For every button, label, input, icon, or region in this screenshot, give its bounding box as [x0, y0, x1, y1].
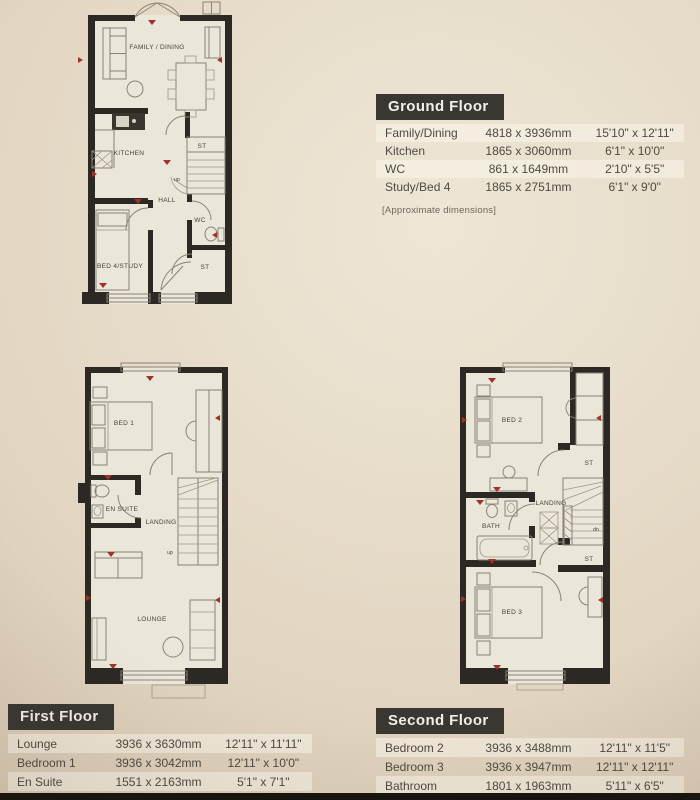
- imperial-dimensions: 15'10" x 12'11": [585, 126, 684, 140]
- imperial-dimensions: 6'1" x 9'0": [585, 180, 684, 194]
- metric-dimensions: 1801 x 1963mm: [471, 779, 585, 793]
- room-label-st-upper: ST: [198, 143, 207, 150]
- room-label-bed2: BED 2: [502, 417, 522, 424]
- table-row: Bedroom 2 3936 x 3488mm 12'11" x 11'5": [376, 738, 684, 757]
- metric-dimensions: 1551 x 2163mm: [102, 775, 214, 789]
- room-label-bed1: BED 1: [114, 420, 134, 427]
- approximate-dimensions-note: [Approximate dimensions]: [376, 205, 684, 216]
- page-bottom-bar: [0, 793, 700, 800]
- table-row: Study/Bed 4 1865 x 2751mm 6'1" x 9'0": [376, 178, 684, 196]
- table-row: En Suite 1551 x 2163mm 5'1" x 7'1": [8, 772, 312, 791]
- room-name: Study/Bed 4: [376, 180, 471, 194]
- second-floor-title: Second Floor: [376, 708, 504, 734]
- room-name: Lounge: [8, 737, 102, 751]
- imperial-dimensions: 12'11" x 11'11": [215, 737, 312, 751]
- second-floor-plan: BED 2 ST BATH LANDING up ST BED 3: [458, 360, 612, 694]
- flue-box: [203, 2, 220, 14]
- metric-dimensions: 1865 x 3060mm: [471, 144, 585, 158]
- room-label-en-suite: EN SUITE: [106, 506, 139, 513]
- ground-floor-table: Ground Floor Family/Dining 4818 x 3936mm…: [376, 94, 684, 216]
- imperial-dimensions: 5'11" x 6'5": [585, 779, 684, 793]
- room-label-bed4-study: BED 4/STUDY: [97, 263, 143, 270]
- room-label-bath: BATH: [482, 523, 500, 530]
- room-label-hall: HALL: [158, 197, 176, 204]
- table-row: WC 861 x 1649mm 2'10" x 5'5": [376, 160, 684, 178]
- table-row: Lounge 3936 x 3630mm 12'11" x 11'11": [8, 734, 312, 753]
- metric-dimensions: 861 x 1649mm: [471, 162, 585, 176]
- stairs-up-label: up: [593, 526, 599, 532]
- room-name: Bedroom 2: [376, 741, 471, 755]
- metric-dimensions: 3936 x 3488mm: [471, 741, 585, 755]
- room-name: WC: [376, 162, 471, 176]
- metric-dimensions: 3936 x 3947mm: [471, 760, 585, 774]
- room-label-kitchen: KITCHEN: [114, 150, 145, 157]
- metric-dimensions: 3936 x 3630mm: [102, 737, 214, 751]
- ground-floor-title: Ground Floor: [376, 94, 504, 120]
- room-label-family-dining: FAMILY / DINING: [129, 44, 184, 51]
- metric-dimensions: 1865 x 2751mm: [471, 180, 585, 194]
- first-floor-table: First Floor Lounge 3936 x 3630mm 12'11" …: [8, 704, 312, 791]
- table-row: Bedroom 3 3936 x 3947mm 12'11" x 12'11": [376, 757, 684, 776]
- room-label-st-lower: ST: [585, 556, 594, 563]
- room-name: Family/Dining: [376, 126, 471, 140]
- imperial-dimensions: 6'1" x 10'0": [585, 144, 684, 158]
- room-name: Bedroom 3: [376, 760, 471, 774]
- room-name: Kitchen: [376, 144, 471, 158]
- table-row: Kitchen 1865 x 3060mm 6'1" x 10'0": [376, 142, 684, 160]
- room-name: Bathroom: [376, 779, 471, 793]
- first-floor-plan: BED 1 EN SUITE LANDING up LOUNGE: [78, 360, 234, 700]
- table-row: Family/Dining 4818 x 3936mm 15'10" x 12'…: [376, 124, 684, 142]
- room-label-st-lower: ST: [201, 264, 210, 271]
- imperial-dimensions: 12'11" x 10'0": [215, 756, 312, 770]
- french-doors: [135, 3, 180, 17]
- imperial-dimensions: 12'11" x 11'5": [585, 741, 684, 755]
- metric-dimensions: 4818 x 3936mm: [471, 126, 585, 140]
- room-label-bed3: BED 3: [502, 609, 522, 616]
- imperial-dimensions: 5'1" x 7'1": [215, 775, 312, 789]
- first-floor-title: First Floor: [8, 704, 114, 730]
- imperial-dimensions: 2'10" x 5'5": [585, 162, 684, 176]
- room-name: En Suite: [8, 775, 102, 789]
- metric-dimensions: 3936 x 3042mm: [102, 756, 214, 770]
- room-label-landing: LANDING: [536, 500, 567, 507]
- room-name: Bedroom 1: [8, 756, 102, 770]
- stairs-up-label: up: [167, 550, 173, 556]
- stairs-up-label: up: [174, 177, 180, 183]
- imperial-dimensions: 12'11" x 12'11": [585, 760, 684, 774]
- room-label-wc: WC: [194, 217, 205, 224]
- second-floor-table: Second Floor Bedroom 2 3936 x 3488mm 12'…: [376, 708, 684, 795]
- room-label-st-upper: ST: [585, 460, 594, 467]
- room-label-landing: LANDING: [146, 519, 177, 526]
- room-label-lounge: LOUNGE: [137, 616, 167, 623]
- table-row: Bedroom 1 3936 x 3042mm 12'11" x 10'0": [8, 753, 312, 772]
- ground-floor-plan: FAMILY / DINING KITCHEN ST up HALL WC ST…: [74, 0, 234, 312]
